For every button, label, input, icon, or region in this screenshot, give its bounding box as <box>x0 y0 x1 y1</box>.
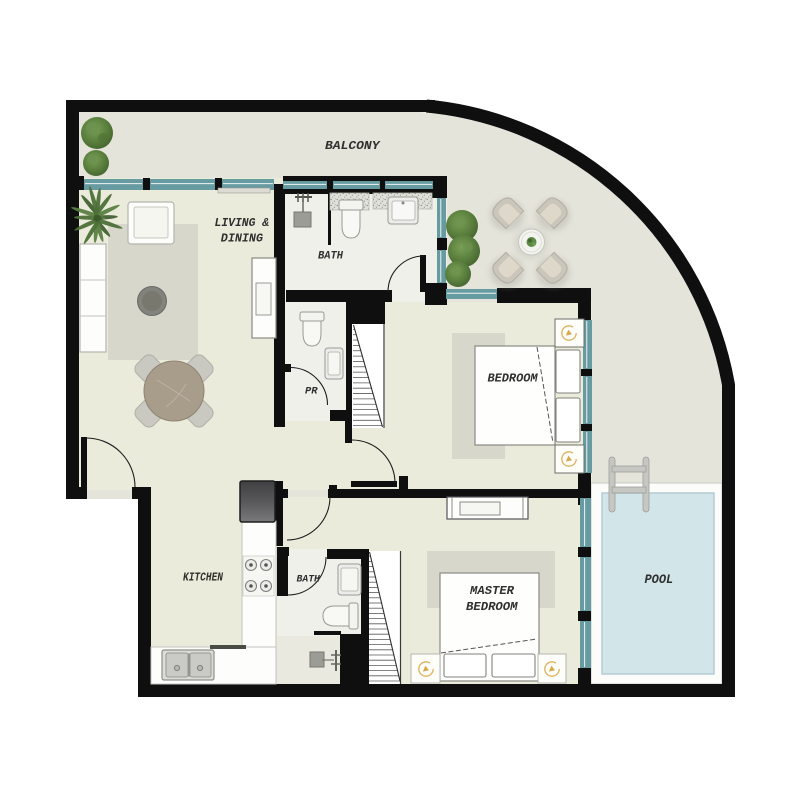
svg-text:BEDROOM: BEDROOM <box>488 372 539 386</box>
svg-text:PR: PR <box>305 386 318 398</box>
svg-text:BATH: BATH <box>297 574 321 586</box>
svg-text:BALCONY: BALCONY <box>325 139 381 153</box>
svg-text:BATH: BATH <box>318 251 343 263</box>
svg-text:KITCHEN: KITCHEN <box>183 572 224 585</box>
svg-text:DINING: DINING <box>221 232 263 245</box>
svg-text:BEDROOM: BEDROOM <box>466 600 518 614</box>
svg-text:POOL: POOL <box>645 572 674 587</box>
svg-text:LIVING &: LIVING & <box>215 217 270 230</box>
svg-text:MASTER: MASTER <box>469 584 515 598</box>
